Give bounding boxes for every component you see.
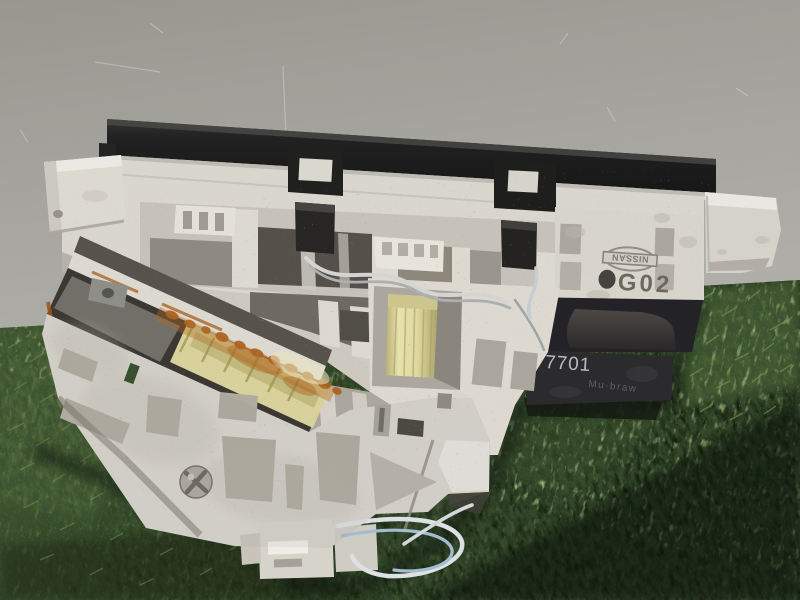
svg-text:7701: 7701: [544, 352, 592, 376]
